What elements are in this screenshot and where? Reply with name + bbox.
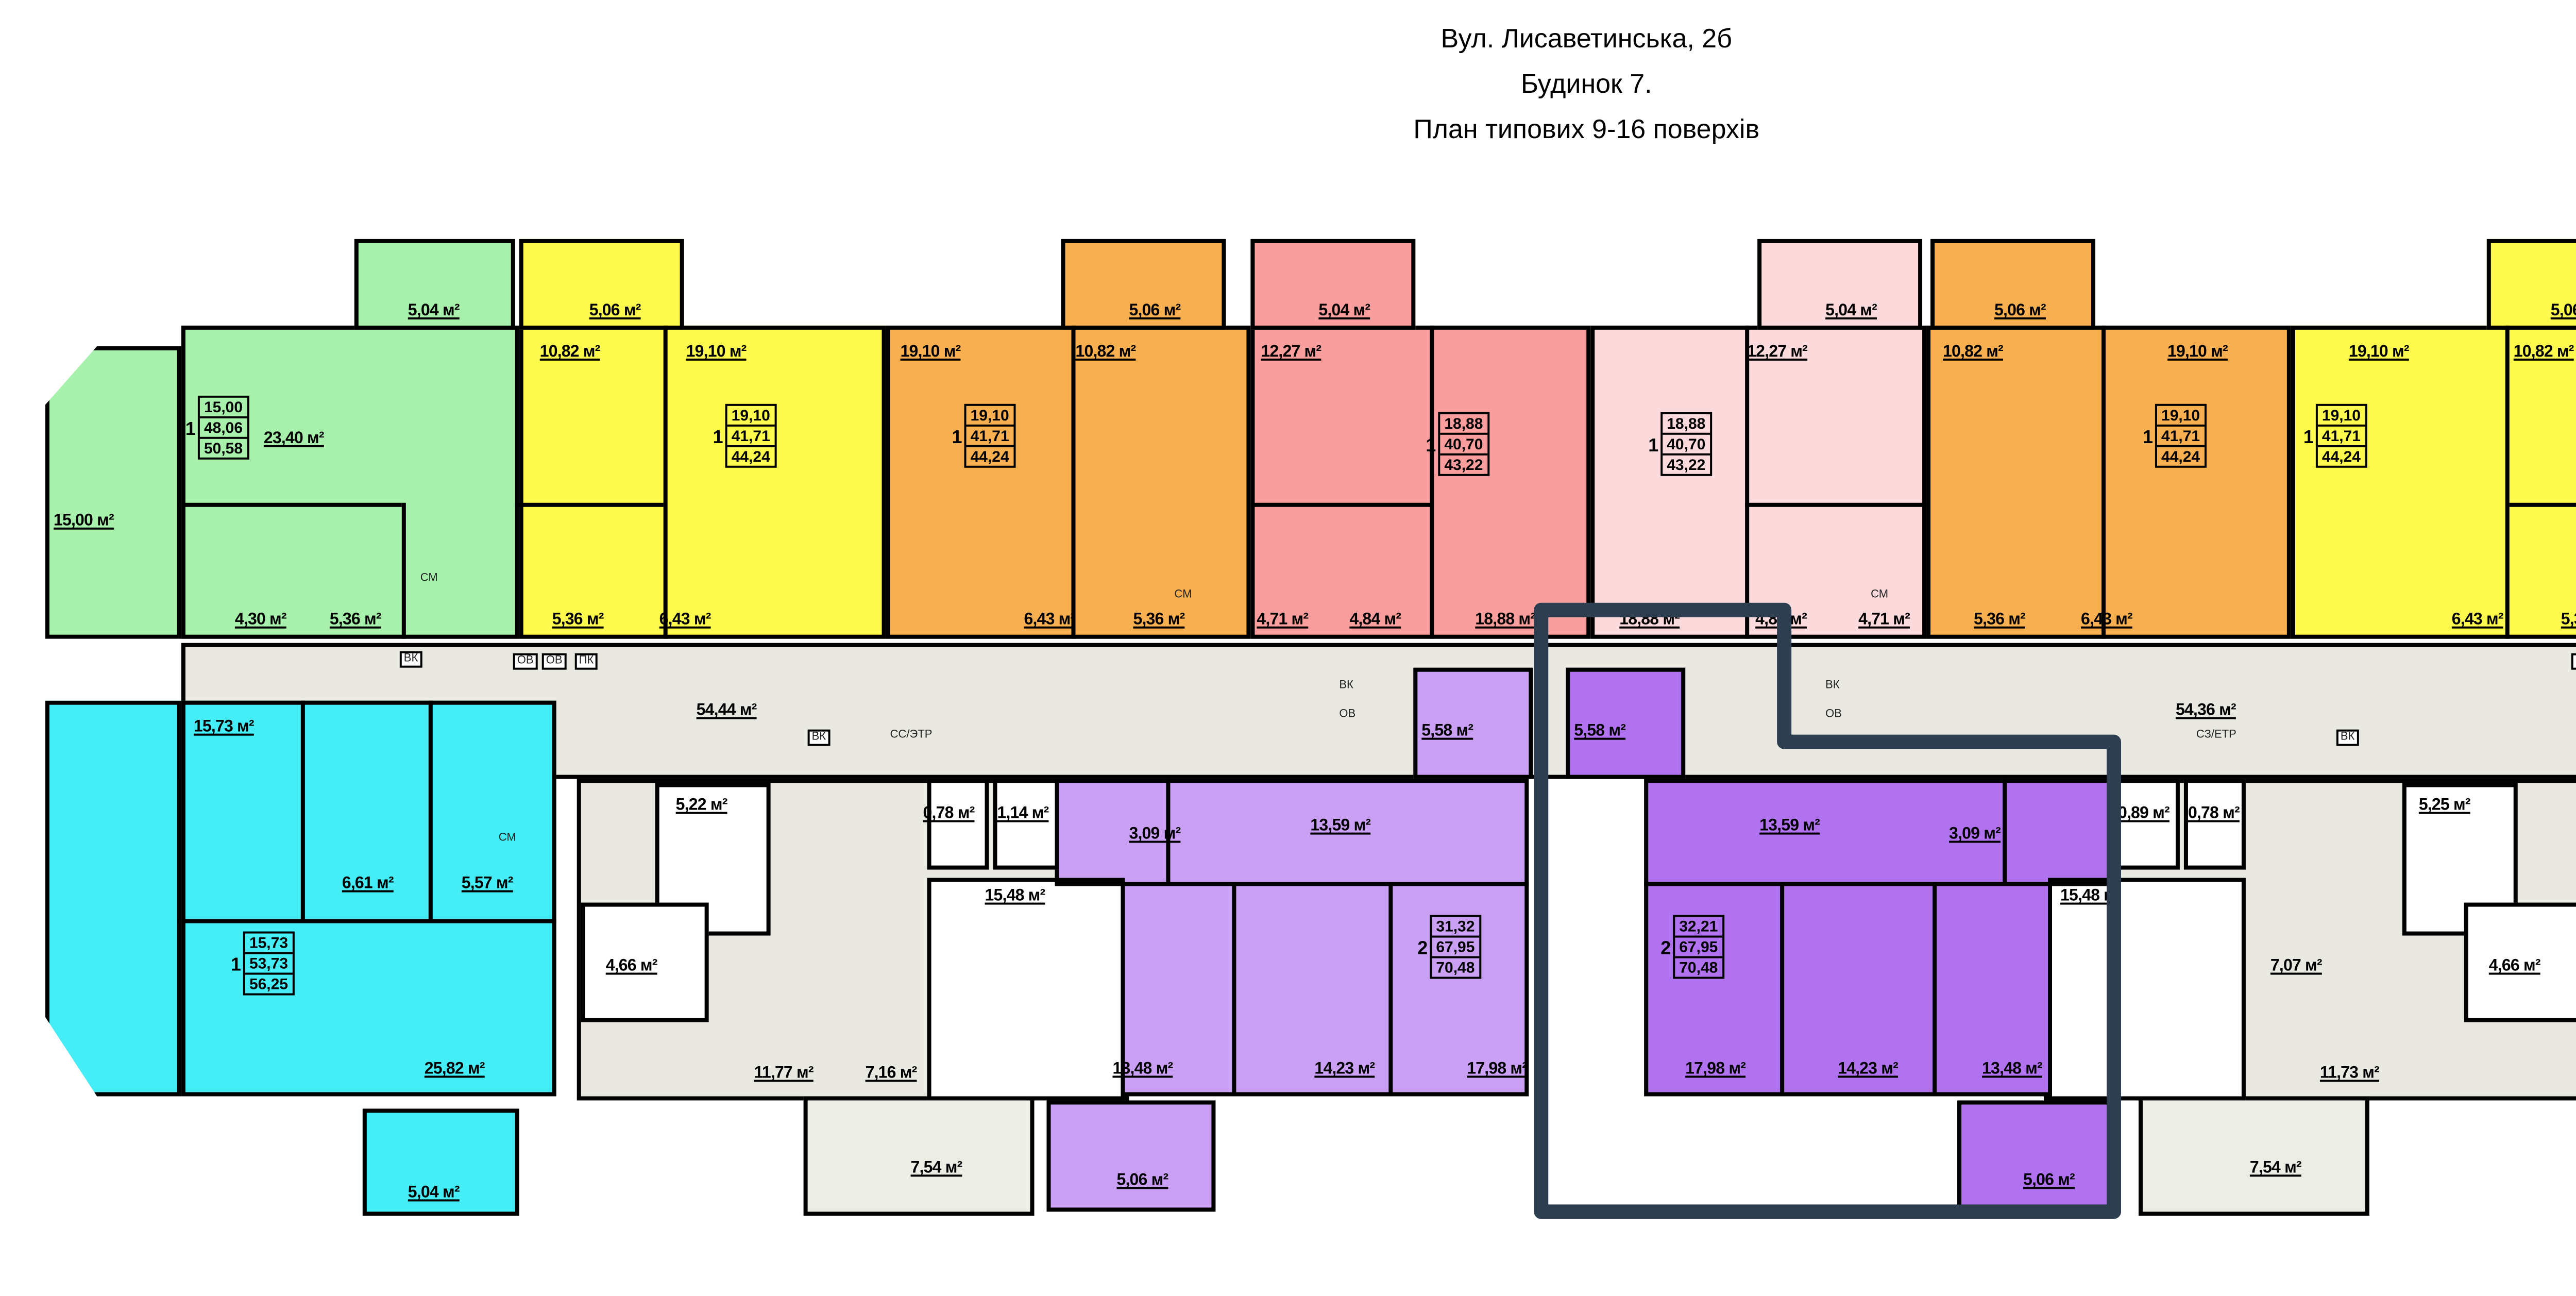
room-area-label: 10,82 м²	[1075, 342, 1136, 361]
room-area-label: 5,58 м²	[1574, 721, 1625, 740]
unit-living-area: 19,10	[2318, 406, 2365, 427]
interior-wall	[1055, 882, 1529, 886]
room-area-label: 6,43 м²	[659, 610, 711, 629]
room-area-label: 12,27 м²	[1747, 342, 1807, 361]
room-area-label: 5,06 м²	[589, 301, 641, 319]
interior-wall	[1430, 326, 1434, 639]
room-area-label: 0,89 м²	[2118, 804, 2170, 822]
room-area-label: 13,48 м²	[1982, 1059, 2042, 1078]
interior-wall	[402, 503, 406, 639]
room-area-label: 5,58 м²	[1421, 721, 1473, 740]
apt-cyan-left-bay	[45, 701, 181, 1097]
room-area-label: 10,82 м²	[2514, 342, 2574, 361]
interior-wall	[664, 326, 668, 639]
techroom-right-2	[2184, 779, 2246, 870]
room-area-label: 5,06 м²	[1129, 301, 1180, 319]
stairs-right	[2048, 878, 2246, 1101]
engineering-marker: СЗ/ЕТР	[2196, 730, 2236, 742]
plan-title-floors: План типових 9-16 поверхів	[0, 107, 2576, 153]
unit-living-area: 19,10	[2157, 406, 2204, 427]
room-area-label: 6,43 м²	[2081, 610, 2132, 629]
interior-wall	[301, 701, 305, 919]
unit-areas-box: 15,7353,7356,25	[243, 932, 294, 996]
balcony-purple-right	[1957, 1100, 2118, 1211]
room-area-label: 54,36 м²	[2176, 701, 2236, 719]
unit-apartment-area: 40,70	[1440, 435, 1487, 456]
plan-title-block: Вул. Лисаветинська, 2б Будинок 7. План т…	[0, 16, 2576, 153]
engineering-marker: СМ	[499, 833, 516, 845]
table-purple-right: 232,2167,9570,48	[1660, 915, 1724, 979]
unit-living-area: 18,88	[1663, 414, 1709, 435]
interior-wall	[1644, 882, 2114, 886]
unit-areas-box: 19,1041,7144,24	[2155, 404, 2206, 468]
interior-wall	[2003, 779, 2007, 882]
unit-areas-box: 19,1041,7144,24	[2316, 404, 2367, 468]
interior-wall	[2510, 503, 2576, 507]
unit-apartment-area: 40,70	[1663, 435, 1709, 456]
unit-total-area: 43,22	[1440, 456, 1487, 474]
engineering-marker: ПК	[575, 653, 598, 670]
room-area-label: 5,04 м²	[1318, 301, 1370, 319]
apt-green-left	[181, 326, 519, 639]
apt-yellow-left	[519, 326, 886, 639]
room-area-label: 18,88 м²	[1475, 610, 1535, 629]
room-area-label: 10,82 м²	[1943, 342, 2003, 361]
engineering-marker: ВК	[808, 730, 830, 746]
engineering-marker: ВК	[1825, 680, 1839, 693]
vestibule-right	[2139, 1096, 2369, 1216]
unit-total-area: 70,48	[1675, 958, 1722, 977]
interior-wall	[1250, 503, 1432, 507]
room-area-label: 19,10 м²	[686, 342, 747, 361]
room-area-label: 13,59 м²	[1310, 816, 1370, 835]
room-area-label: 10,82 м²	[540, 342, 600, 361]
room-area-label: 19,10 м²	[901, 342, 961, 361]
unit-apartment-area: 41,71	[967, 427, 1013, 447]
interior-wall	[181, 503, 402, 507]
unit-areas-box: 15,0048,0650,58	[198, 396, 249, 460]
room-area-label: 14,23 м²	[1838, 1059, 1898, 1078]
room-area-label: 6,61 м²	[342, 874, 394, 893]
unit-rooms-count: 1	[1648, 434, 1658, 455]
room-area-label: 14,23 м²	[1314, 1059, 1375, 1078]
plan-title-address: Вул. Лисаветинська, 2б	[0, 16, 2576, 62]
techroom-right-1	[2114, 779, 2180, 870]
unit-apartment-area: 41,71	[2157, 427, 2204, 447]
interior-wall	[2102, 326, 2106, 639]
room-area-label: 17,98 м²	[1467, 1059, 1527, 1078]
unit-total-area: 56,25	[245, 975, 292, 994]
balcony-purple-left	[1046, 1100, 1215, 1211]
room-area-label: 13,48 м²	[1112, 1059, 1173, 1078]
room-area-label: 5,36 м²	[1974, 610, 2025, 629]
room-area-label: 7,16 м²	[866, 1063, 917, 1082]
floor-plan-canvas: 5,04 м²5,06 м²5,06 м²5,04 м²5,04 м²5,06 …	[0, 0, 2576, 1296]
unit-total-area: 43,22	[1663, 456, 1709, 474]
room-area-label: 15,48 м²	[2060, 886, 2121, 905]
interior-wall	[1780, 886, 1784, 1097]
table-green-left: 115,0048,0650,58	[185, 396, 249, 460]
unit-apartment-area: 53,73	[245, 954, 292, 975]
room-area-label: 15,00 м²	[54, 511, 114, 530]
room-area-label: 4,66 м²	[606, 956, 657, 975]
unit-living-area: 15,00	[200, 398, 247, 418]
unit-living-area: 18,88	[1440, 414, 1487, 435]
apt-yellow-right	[2291, 326, 2576, 639]
unit-total-area: 44,24	[2157, 447, 2204, 466]
room-area-label: 19,10 м²	[2349, 342, 2409, 361]
room-area-label: 5,36 м²	[552, 610, 604, 629]
room-area-label: 4,71 м²	[1257, 610, 1308, 629]
plan-title-building: Будинок 7.	[0, 62, 2576, 107]
room-area-label: 3,09 м²	[1129, 824, 1180, 843]
room-area-label: 5,06 м²	[1116, 1170, 1168, 1189]
room-area-label: 1,14 м²	[997, 804, 1049, 822]
unit-apartment-area: 67,95	[1675, 938, 1722, 958]
unit-rooms-count: 1	[2143, 426, 2153, 446]
unit-total-area: 44,24	[2318, 447, 2365, 466]
apt-green-left-bay	[45, 346, 181, 639]
table-purple-left: 231,3267,9570,48	[1417, 915, 1481, 979]
interior-wall	[181, 919, 556, 923]
room-area-label: 5,04 м²	[1825, 301, 1877, 319]
engineering-marker: ОВ	[513, 653, 538, 670]
engineering-marker: СС/ЭТР	[890, 730, 933, 742]
unit-rooms-count: 1	[2303, 426, 2314, 446]
unit-living-area: 32,21	[1675, 917, 1722, 938]
interior-wall	[2505, 326, 2510, 639]
room-area-label: 4,84 м²	[1755, 610, 1807, 629]
room-area-label: 5,36 м²	[330, 610, 381, 629]
table-pink-left: 118,8840,7043,22	[1426, 412, 1489, 476]
unit-apartment-area: 48,06	[200, 418, 247, 439]
room-area-label: 25,82 м²	[425, 1059, 485, 1078]
room-area-label: 6,43 м²	[2452, 610, 2503, 629]
unit-total-area: 44,24	[727, 447, 774, 466]
apt-pink-left	[1250, 326, 1590, 639]
room-area-label: 5,22 м²	[676, 796, 727, 814]
engineering-marker: СМ	[420, 573, 438, 585]
room-area-label: 12,27 м²	[1261, 342, 1321, 361]
apt-orange-right	[1926, 326, 2291, 639]
room-area-label: 54,44 м²	[697, 701, 757, 719]
unit-living-area: 31,32	[1432, 917, 1479, 938]
engineering-marker: СМ	[1174, 590, 1192, 602]
engineering-marker: ОВ	[1339, 709, 1355, 721]
interior-wall	[1232, 886, 1236, 1097]
room-area-label: 15,48 м²	[985, 886, 1045, 905]
unit-rooms-count: 1	[1426, 434, 1436, 455]
stairs-left	[927, 878, 1125, 1101]
unit-rooms-count: 1	[231, 953, 241, 974]
room-area-label: 19,10 м²	[2167, 342, 2228, 361]
unit-rooms-count: 1	[952, 426, 962, 446]
engineering-marker: ПК	[2571, 653, 2576, 670]
unit-areas-box: 19,1041,7144,24	[725, 404, 776, 468]
room-area-label: 4,30 м²	[235, 610, 286, 629]
interior-wall	[1071, 326, 1075, 639]
unit-total-area: 50,58	[200, 439, 247, 458]
unit-living-area: 15,73	[245, 934, 292, 954]
unit-living-area: 19,10	[967, 406, 1013, 427]
room-area-label: 5,36 м²	[2561, 610, 2576, 629]
engineering-marker: СМ	[1871, 590, 1888, 602]
room-area-label: 11,73 м²	[2320, 1063, 2379, 1082]
room-area-label: 18,88 м²	[1619, 610, 1680, 629]
apt-cyan-left	[181, 701, 556, 1097]
room-area-label: 4,71 м²	[1858, 610, 1910, 629]
room-area-label: 6,43 м²	[1024, 610, 1076, 629]
table-yellow-right: 119,1041,7144,24	[2303, 404, 2367, 468]
room-area-label: 4,66 м²	[2489, 956, 2540, 975]
table-orange-left: 119,1041,7144,24	[952, 404, 1015, 468]
unit-areas-box: 18,8840,7043,22	[1660, 412, 1711, 476]
interior-wall	[1388, 886, 1393, 1097]
unit-living-area: 19,10	[727, 406, 774, 427]
room-area-label: 0,78 м²	[923, 804, 975, 822]
unit-rooms-count: 1	[713, 426, 723, 446]
room-area-label: 5,06 м²	[1994, 301, 2046, 319]
interior-wall	[515, 503, 664, 507]
interior-wall	[1745, 326, 1749, 639]
table-orange-right: 119,1041,7144,24	[2143, 404, 2206, 468]
engineering-marker: ОВ	[542, 653, 567, 670]
unit-areas-box: 18,8840,7043,22	[1438, 412, 1489, 476]
floor-plan-stage: 5,04 м²5,06 м²5,06 м²5,04 м²5,04 м²5,06 …	[0, 0, 2576, 1296]
room-area-label: 7,54 м²	[2250, 1158, 2301, 1176]
room-area-label: 5,06 м²	[2023, 1170, 2075, 1189]
engineering-marker: ОВ	[1825, 709, 1842, 721]
interior-wall	[1745, 503, 1926, 507]
unit-apartment-area: 67,95	[1432, 938, 1479, 958]
engineering-marker: ВК	[2336, 730, 2359, 746]
unit-apartment-area: 41,71	[727, 427, 774, 447]
room-area-label: 17,98 м²	[1685, 1059, 1745, 1078]
unit-apartment-area: 41,71	[2318, 427, 2365, 447]
room-area-label: 7,07 м²	[2270, 956, 2322, 975]
room-area-label: 5,25 м²	[2419, 796, 2470, 814]
interior-wall	[1933, 886, 1937, 1097]
engineering-marker: ВК	[1339, 680, 1353, 693]
vestibule-left	[804, 1096, 1035, 1216]
room-area-label: 7,54 м²	[911, 1158, 962, 1176]
unit-areas-box: 19,1041,7144,24	[964, 404, 1015, 468]
interior-wall	[429, 701, 433, 919]
room-area-label: 4,84 м²	[1349, 610, 1401, 629]
table-pink-right: 118,8840,7043,22	[1648, 412, 1711, 476]
room-area-label: 0,78 м²	[2188, 804, 2240, 822]
engineering-marker: ВК	[400, 651, 422, 668]
room-area-label: 11,77 м²	[754, 1063, 814, 1082]
unit-total-area: 44,24	[967, 447, 1013, 466]
unit-total-area: 70,48	[1432, 958, 1479, 977]
techroom-left-2	[993, 779, 1059, 870]
unit-rooms-count: 2	[1417, 937, 1428, 957]
table-yellow-left: 119,1041,7144,24	[713, 404, 776, 468]
unit-rooms-count: 2	[1660, 937, 1671, 957]
room-area-label: 5,04 м²	[408, 301, 460, 319]
room-area-label: 13,59 м²	[1759, 816, 1820, 835]
room-area-label: 3,09 м²	[1949, 824, 2001, 843]
room-area-label: 5,57 м²	[462, 874, 513, 893]
unit-rooms-count: 1	[185, 417, 196, 438]
table-cyan-left: 115,7353,7356,25	[231, 932, 294, 996]
apt-orange-left	[886, 326, 1251, 639]
unit-areas-box: 31,3267,9570,48	[1430, 915, 1481, 979]
unit-areas-box: 32,2167,9570,48	[1673, 915, 1724, 979]
room-area-label: 5,06 м²	[2551, 301, 2576, 319]
room-area-label: 23,40 м²	[264, 429, 324, 447]
techroom-left-1	[927, 779, 989, 870]
room-area-label: 5,36 м²	[1133, 610, 1184, 629]
room-area-label: 15,73 м²	[194, 717, 254, 736]
room-area-label: 5,04 м²	[408, 1183, 460, 1201]
